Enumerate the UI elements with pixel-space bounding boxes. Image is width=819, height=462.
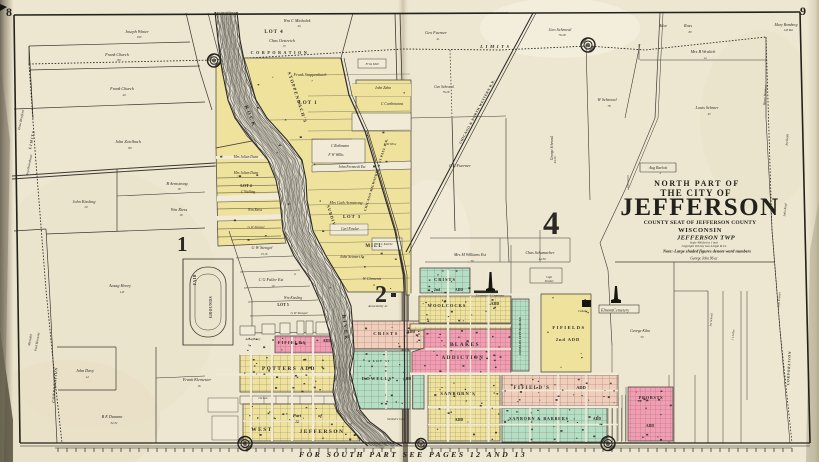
svg-text:14: 14 (85, 375, 89, 379)
svg-text:143: 143 (120, 290, 125, 294)
svg-text:JEFFERSON: JEFFERSON (620, 194, 779, 221)
svg-text:C Walling: C Walling (241, 190, 256, 194)
svg-text:ADD: ADD (403, 377, 411, 381)
svg-text:WOOLCOCKS: WOOLCOCKS (428, 303, 467, 308)
svg-text:George Schroeal: George Schroeal (550, 136, 554, 160)
svg-text:George Kiba: George Kiba (630, 329, 650, 333)
svg-text:A LOT 31: A LOT 31 (368, 359, 390, 363)
svg-text:143 Rd: 143 Rd (783, 28, 793, 32)
svg-text:Copyright 1914 by Geo A Ogle &: Copyright 1914 by Geo A Ogle & Co (682, 244, 727, 248)
svg-text:100: 100 (137, 35, 142, 39)
svg-text:4: 4 (543, 206, 560, 242)
svg-text:9: 9 (800, 4, 806, 18)
svg-text:B E Dunann: B E Dunann (102, 414, 123, 419)
svg-text:ADD: ADD (455, 288, 463, 292)
svg-text:2nd ADD: 2nd ADD (556, 337, 580, 342)
svg-text:FIFIELD'S: FIFIELD'S (514, 386, 551, 391)
svg-text:John Zahn: John Zahn (375, 86, 391, 90)
svg-text:John Davy: John Davy (76, 368, 94, 373)
svg-text:Frank Klemester: Frank Klemester (182, 377, 212, 382)
svg-text:Anna Kelly 41: Anna Kelly 41 (367, 304, 388, 308)
svg-text:ADD: ADD (407, 329, 416, 334)
svg-text:W Schroeal: W Schroeal (597, 97, 617, 102)
svg-text:POTTERS ADD: POTTERS ADD (262, 366, 316, 372)
svg-text:Frank Stoppenbach: Frank Stoppenbach (293, 72, 327, 77)
svg-text:COUNTY SEAT OF JEFFERSON COUNT: COUNTY SEAT OF JEFFERSON COUNTY (644, 220, 757, 226)
svg-text:SANBORN'S: SANBORN'S (440, 391, 475, 396)
svg-text:13: 13 (283, 44, 287, 48)
svg-text:2nd: 2nd (434, 288, 441, 292)
svg-text:Geo Schroeal: Geo Schroeal (549, 27, 573, 32)
svg-text:CRISTS: CRISTS (434, 277, 456, 282)
svg-text:Joseph Winter: Joseph Winter (125, 29, 149, 34)
svg-text:ADD: ADD (646, 424, 654, 428)
svg-text:Louis Schmer: Louis Schmer (695, 105, 719, 110)
svg-text:14: 14 (704, 56, 708, 60)
svg-text:Frank Church: Frank Church (109, 86, 134, 91)
svg-text:FOR SOUTH PART SEE PAGES: FOR SOUTH PART SEE PAGES 12 AND 13 (299, 450, 527, 459)
svg-text:14.30: 14.30 (538, 257, 546, 261)
svg-text:John Kissling: John Kissling (73, 199, 96, 204)
svg-text:80: 80 (689, 30, 693, 34)
svg-text:Aasag Henry: Aasag Henry (108, 283, 131, 288)
svg-text:Part: Part (293, 413, 302, 418)
svg-text:WISCONSIN: WISCONSIN (678, 227, 722, 234)
svg-text:Chas Oestreich: Chas Oestreich (269, 38, 295, 43)
svg-text:of: of (318, 413, 322, 418)
svg-text:C Rothmann: C Rothmann (331, 144, 349, 148)
svg-text:Mrs M Williams Est: Mrs M Williams Est (453, 252, 487, 257)
svg-text:Strobel's Cem: Strobel's Cem (387, 417, 405, 421)
svg-text:George John 96 ac: George John 96 ac (690, 257, 718, 261)
svg-text:G W Stengel: G W Stengel (291, 311, 308, 315)
svg-text:Fritz Mill: Fritz Mill (364, 62, 378, 66)
svg-text:Mary Bomberg: Mary Bomberg (774, 23, 798, 27)
svg-text:John Seimert Sr: John Seimert Sr (340, 255, 365, 259)
svg-text:DOWELLS: DOWELLS (362, 376, 392, 381)
svg-text:41: 41 (437, 37, 441, 41)
svg-text:10: 10 (272, 284, 276, 288)
svg-text:50: 50 (641, 335, 645, 339)
svg-text:78: 78 (608, 104, 612, 108)
svg-text:Aug Raelott: Aug Raelott (648, 166, 668, 170)
svg-text:Frank Church: Frank Church (104, 52, 129, 57)
svg-text:1: 1 (177, 232, 188, 256)
svg-text:FIFIELDS CITY BLOCKS: FIFIELDS CITY BLOCKS (518, 317, 522, 355)
svg-text:80: 80 (128, 146, 132, 150)
svg-text:CRISTS: CRISTS (373, 331, 399, 336)
svg-text:ADDICTION: ADDICTION (442, 356, 485, 361)
svg-text:BLAKES: BLAKES (450, 342, 480, 348)
svg-text:Alice: Alice (658, 23, 668, 28)
svg-text:C G Fuller Est: C G Fuller Est (259, 277, 285, 282)
svg-text:B Armstrong: B Armstrong (166, 181, 187, 186)
svg-text:SANBORN & BARBERS: SANBORN & BARBERS (509, 416, 568, 421)
svg-text:John Zetelbach: John Zetelbach (115, 139, 141, 144)
svg-text:LOT 3: LOT 3 (343, 214, 361, 219)
svg-text:John Fernneck Est: John Fernneck Est (339, 165, 367, 169)
svg-text:23: 23 (295, 420, 299, 424)
svg-text:Strobel: Strobel (545, 279, 554, 283)
svg-text:NORTH PART OF: NORTH PART OF (654, 179, 740, 188)
svg-text:76.28: 76.28 (558, 33, 566, 37)
svg-text:W L L Kelche: W L L Kelche (375, 242, 393, 246)
svg-text:Mrs Julian Dunn: Mrs Julian Dunn (233, 155, 259, 159)
svg-text:40: 40 (298, 24, 302, 28)
svg-text:40: 40 (122, 93, 126, 97)
svg-text:F W Willis: F W Willis (327, 153, 344, 157)
svg-text:PROBSTS: PROBSTS (639, 395, 664, 400)
svg-text:Geo Schroeal: Geo Schroeal (434, 85, 454, 89)
svg-text:G W Stengel: G W Stengel (252, 245, 274, 250)
svg-text:20: 20 (85, 205, 89, 209)
svg-text:16: 16 (198, 384, 202, 388)
svg-text:ADD: ADD (323, 338, 332, 343)
svg-text:43: 43 (708, 112, 712, 116)
svg-text:Out Lots: Out Lots (258, 397, 267, 400)
svg-text:32.31: 32.31 (110, 421, 118, 425)
svg-text:Wm Kissling: Wm Kissling (284, 296, 302, 300)
svg-text:WEST: WEST (251, 427, 273, 433)
svg-text:ElmontCemetery: ElmontCemetery (600, 308, 629, 313)
svg-text:Geo Fuerner: Geo Fuerner (425, 30, 447, 35)
svg-text:18: 18 (178, 187, 182, 191)
svg-text:8: 8 (6, 5, 12, 19)
svg-text:AasagHenry: AasagHenry (245, 337, 262, 341)
svg-text:80: 80 (117, 58, 121, 62)
svg-text:G W Stengel: G W Stengel (248, 225, 265, 229)
svg-text:Mrs Cath Armstrong: Mrs Cath Armstrong (328, 200, 362, 205)
svg-text:CORPORATION: CORPORATION (251, 50, 310, 55)
svg-text:LOT 5: LOT 5 (277, 302, 288, 307)
svg-text:76.28: 76.28 (443, 90, 450, 94)
svg-text:Greenwood Cemetery: Greenwood Cemetery (476, 294, 504, 298)
svg-text:Mrs Julian Dunn: Mrs Julian Dunn (233, 171, 259, 175)
svg-text:FIFIELDS: FIFIELDS (552, 325, 585, 330)
svg-text:Chas Schumacher: Chas Schumacher (526, 250, 555, 255)
svg-text:Ross: Ross (683, 23, 692, 28)
svg-text:C L Fuerner: C L Fuerner (449, 163, 471, 168)
svg-text:Wm Riess: Wm Riess (248, 208, 263, 212)
svg-text:F W Wine: F W Wine (383, 142, 397, 146)
svg-text:ADD: ADD (491, 301, 500, 306)
svg-text:ADD: ADD (576, 385, 586, 390)
svg-text:GROUNDS: GROUNDS (209, 296, 213, 318)
svg-text:ADD: ADD (455, 417, 464, 422)
svg-text:Note:-Large shaded figures den: Note:-Large shaded figures denote ward n… (662, 249, 751, 254)
svg-text:FIFIELDS: FIFIELDS (278, 340, 306, 345)
svg-text:JEFFERSON: JEFFERSON (300, 429, 345, 435)
svg-text:W Clements: W Clements (363, 277, 382, 281)
svg-text:C Curthmanns: C Curthmanns (381, 102, 404, 106)
svg-text:43.30: 43.30 (553, 156, 557, 163)
svg-text:LIMITS: LIMITS (479, 44, 511, 49)
svg-text:LOT 4: LOT 4 (264, 30, 283, 35)
svg-text:13.16: 13.16 (261, 252, 268, 256)
svg-text:18: 18 (180, 213, 184, 217)
svg-text:ADD: ADD (593, 417, 601, 421)
svg-text:Wm C Michalek: Wm C Michalek (284, 18, 311, 23)
svg-text:Wm Riess: Wm Riess (171, 207, 188, 212)
svg-text:70: 70 (471, 259, 475, 263)
svg-text:Carl Fowler: Carl Fowler (341, 227, 359, 231)
svg-text:FAIR: FAIR (193, 274, 197, 285)
svg-text:Mrs B Wralich: Mrs B Wralich (690, 49, 716, 54)
svg-text:LOT 4: LOT 4 (240, 183, 251, 188)
